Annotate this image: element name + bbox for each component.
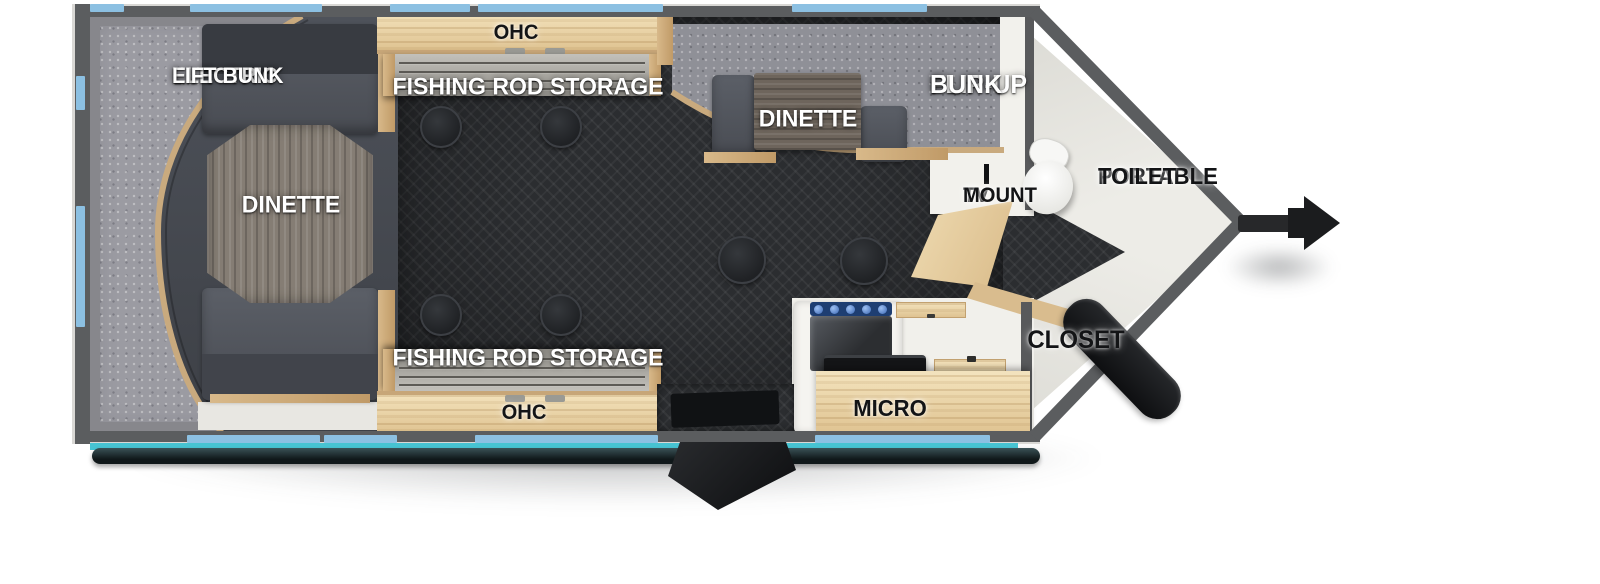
window	[190, 4, 322, 12]
label-line: LIFT BUNK	[172, 66, 283, 87]
label-line: MOUNT	[963, 186, 1037, 206]
window	[792, 4, 927, 12]
fishing-rod-storage-bottom-label: FISHING ROD STORAGE	[393, 348, 664, 371]
window	[76, 76, 85, 110]
window	[390, 4, 470, 12]
window	[475, 435, 658, 443]
window	[187, 435, 320, 443]
closet-label: CLOSET	[1027, 329, 1124, 353]
window	[478, 4, 663, 12]
window	[76, 206, 85, 327]
dinette-left-label: DINETTE	[242, 195, 341, 218]
window	[90, 4, 124, 12]
label-line: TOILET	[1098, 166, 1176, 188]
dinette-right-label: DINETTE	[759, 109, 858, 132]
micro-label: MICRO	[853, 398, 927, 420]
label-line: BUNK	[930, 72, 1002, 97]
fishing-rod-storage-top-label: FISHING ROD STORAGE	[393, 77, 664, 100]
window	[324, 435, 397, 443]
awning-roller	[92, 448, 1040, 464]
ohc-bottom-label: OHC	[502, 403, 547, 423]
window	[815, 435, 990, 443]
ohc-top-label: OHC	[494, 23, 539, 43]
rv-floorplan: ELECTRIC LIFT BUNK DINETTE OHC FISHING R…	[0, 0, 1600, 584]
